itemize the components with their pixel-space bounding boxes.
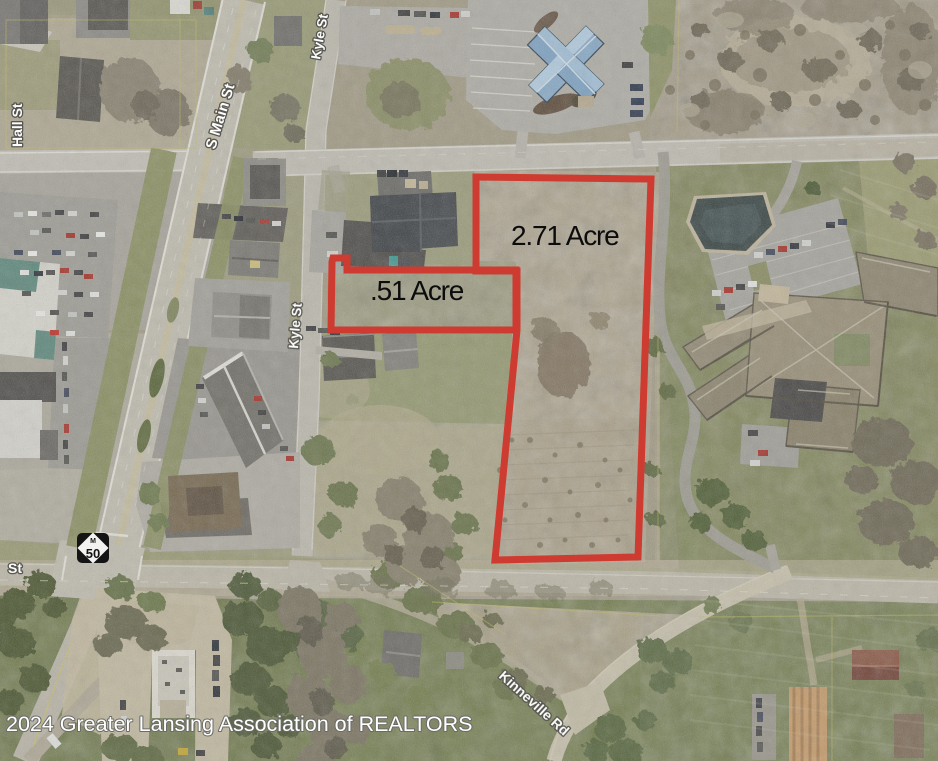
svg-text:M: M (90, 538, 96, 545)
svg-text:2.71 Acre: 2.71 Acre (511, 220, 619, 251)
svg-text:St: St (8, 560, 22, 576)
svg-text:.51 Acre: .51 Acre (370, 275, 464, 306)
svg-text:Hall St: Hall St (9, 103, 25, 147)
svg-text:50: 50 (86, 546, 100, 561)
svg-text:2024 Greater Lansing Associati: 2024 Greater Lansing Association of REAL… (6, 712, 473, 736)
